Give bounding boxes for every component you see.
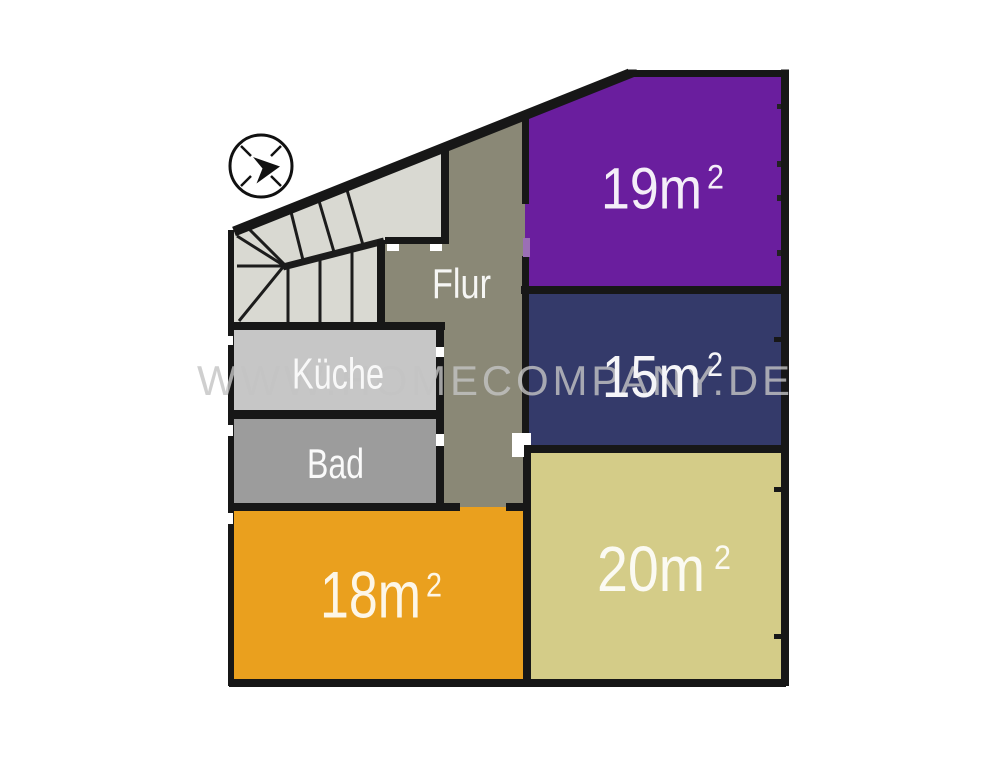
svg-text:Flur: Flur xyxy=(432,260,491,307)
svg-text:18m: 18m xyxy=(320,558,421,632)
svg-text:Bad: Bad xyxy=(307,440,364,487)
svg-text:2: 2 xyxy=(707,346,723,384)
svg-text:20m: 20m xyxy=(597,533,705,605)
svg-text:Küche: Küche xyxy=(292,350,384,399)
svg-text:15m: 15m xyxy=(602,344,701,410)
svg-text:WWW.HOMECOMPANY.DE: WWW.HOMECOMPANY.DE xyxy=(197,357,790,404)
svg-text:19m: 19m xyxy=(601,157,702,222)
svg-text:2: 2 xyxy=(714,539,731,577)
svg-text:2: 2 xyxy=(707,159,724,197)
svg-text:2: 2 xyxy=(426,567,442,605)
